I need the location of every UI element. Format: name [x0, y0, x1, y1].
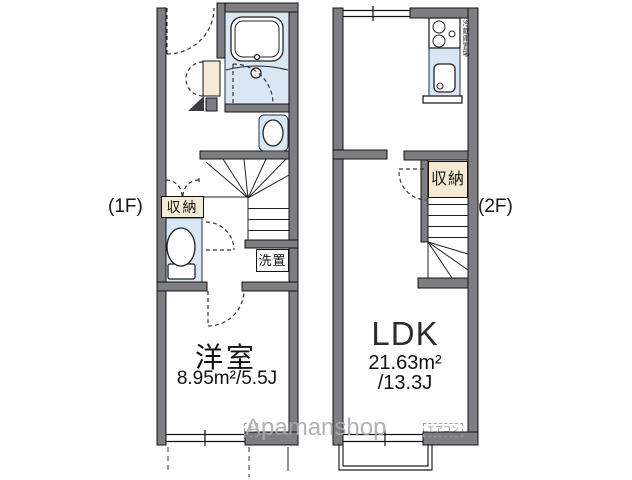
floor2-label: (2F)	[478, 196, 513, 218]
toilet	[167, 228, 195, 279]
floor2-plan	[333, 6, 478, 470]
entrance-door-arc	[167, 8, 214, 54]
storage-doors-1f	[166, 178, 199, 196]
watermark-text: Apamanshop	[245, 414, 386, 442]
floorplan-page: (1F) (2F) 洋室 8.95m²/5.5J LDK 21.63m² /13…	[0, 0, 632, 480]
shoe-cabinet	[186, 61, 220, 96]
porch-1f	[168, 447, 288, 477]
stairs-1f	[203, 159, 289, 240]
floorplan-drawing	[0, 0, 632, 480]
fridge-space-label: 冷蔵庫置場	[459, 20, 470, 98]
window-1f-bottom	[166, 430, 245, 446]
counter-edge	[423, 96, 462, 103]
laundry-space-label: 洗置	[256, 249, 289, 272]
kitchen-unit	[423, 18, 462, 103]
window-2f-top	[343, 6, 410, 21]
storage-label-1f: 収納	[161, 196, 204, 218]
room-name-ldk: LDK	[340, 315, 470, 353]
aircon-label-2f: エアコン	[423, 423, 463, 437]
balcony-2f	[339, 444, 432, 470]
stairs-2f	[428, 205, 468, 279]
storage-label-2f: 収納	[428, 161, 468, 198]
entry-step-triangle	[188, 96, 204, 111]
floor1-label: (1F)	[108, 196, 143, 218]
floor1-plan	[157, 3, 298, 477]
hall-door-arc	[206, 222, 234, 250]
room-area-bedroom: 8.95m²/5.5J	[153, 368, 301, 390]
room-area-ldk-jo: /13.3J	[340, 372, 470, 395]
washbasin	[259, 115, 288, 151]
bedroom-door-arc	[208, 291, 244, 326]
